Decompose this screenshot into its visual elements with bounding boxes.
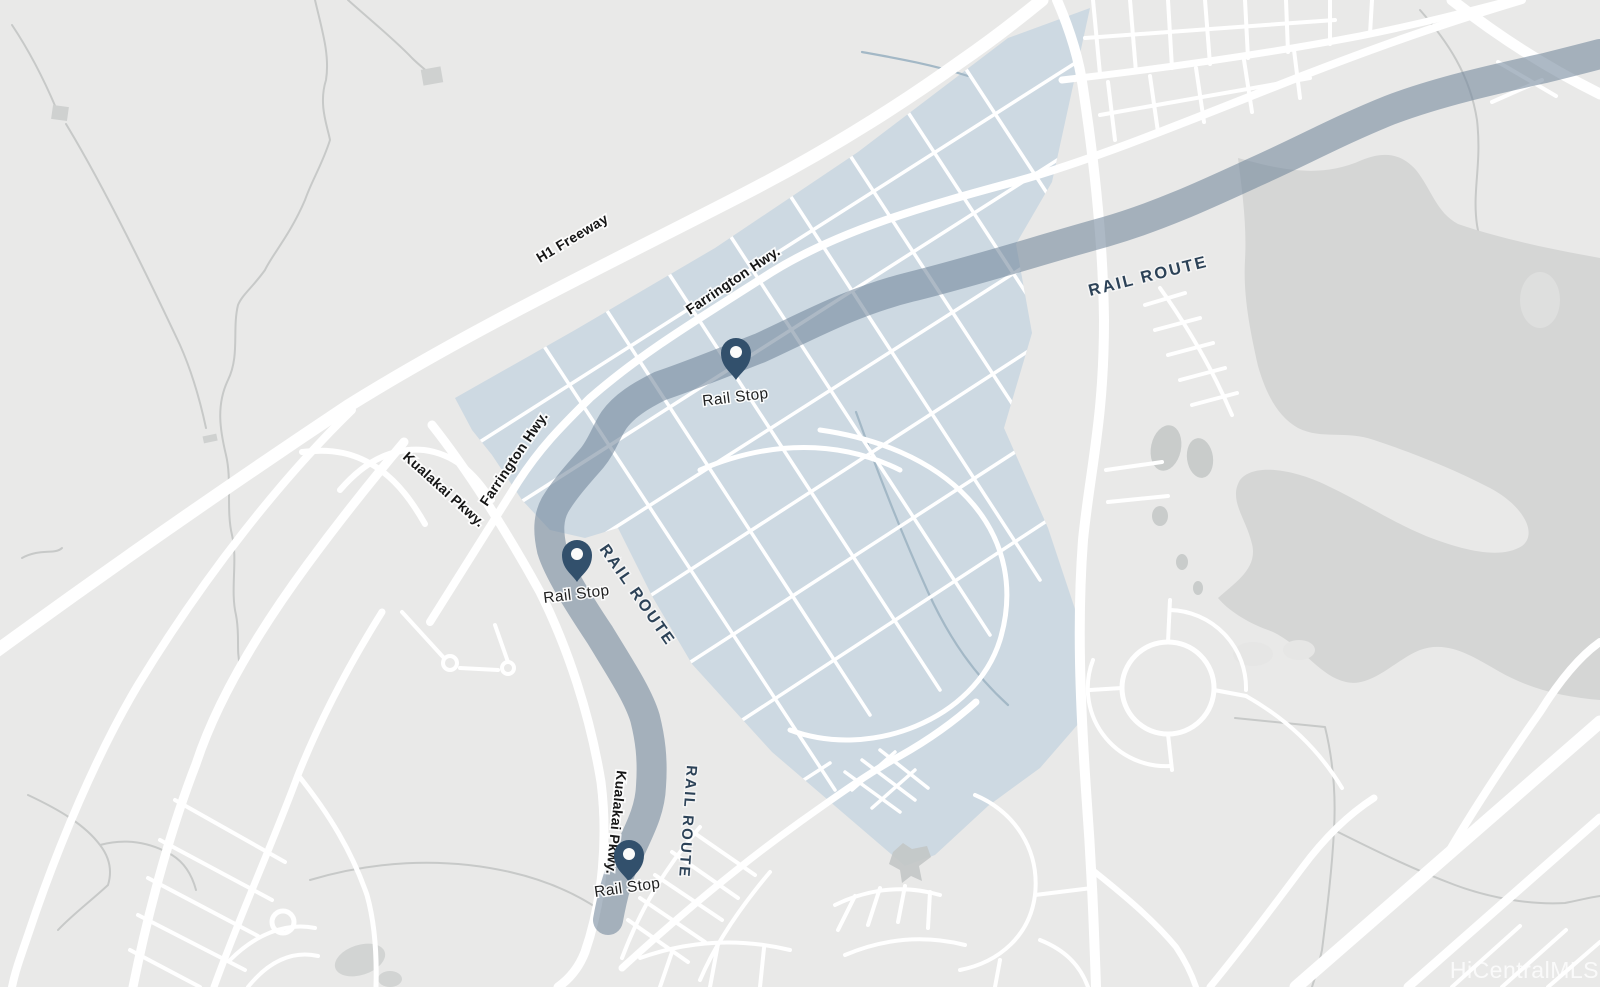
rail-route-map-image: RAIL ROUTE RAIL ROUTE RAIL ROUTE H1 Free… <box>0 0 1600 987</box>
watermark: HiCentralMLS <box>1450 957 1599 983</box>
map-canvas: RAIL ROUTE RAIL ROUTE RAIL ROUTE H1 Free… <box>0 0 1600 987</box>
